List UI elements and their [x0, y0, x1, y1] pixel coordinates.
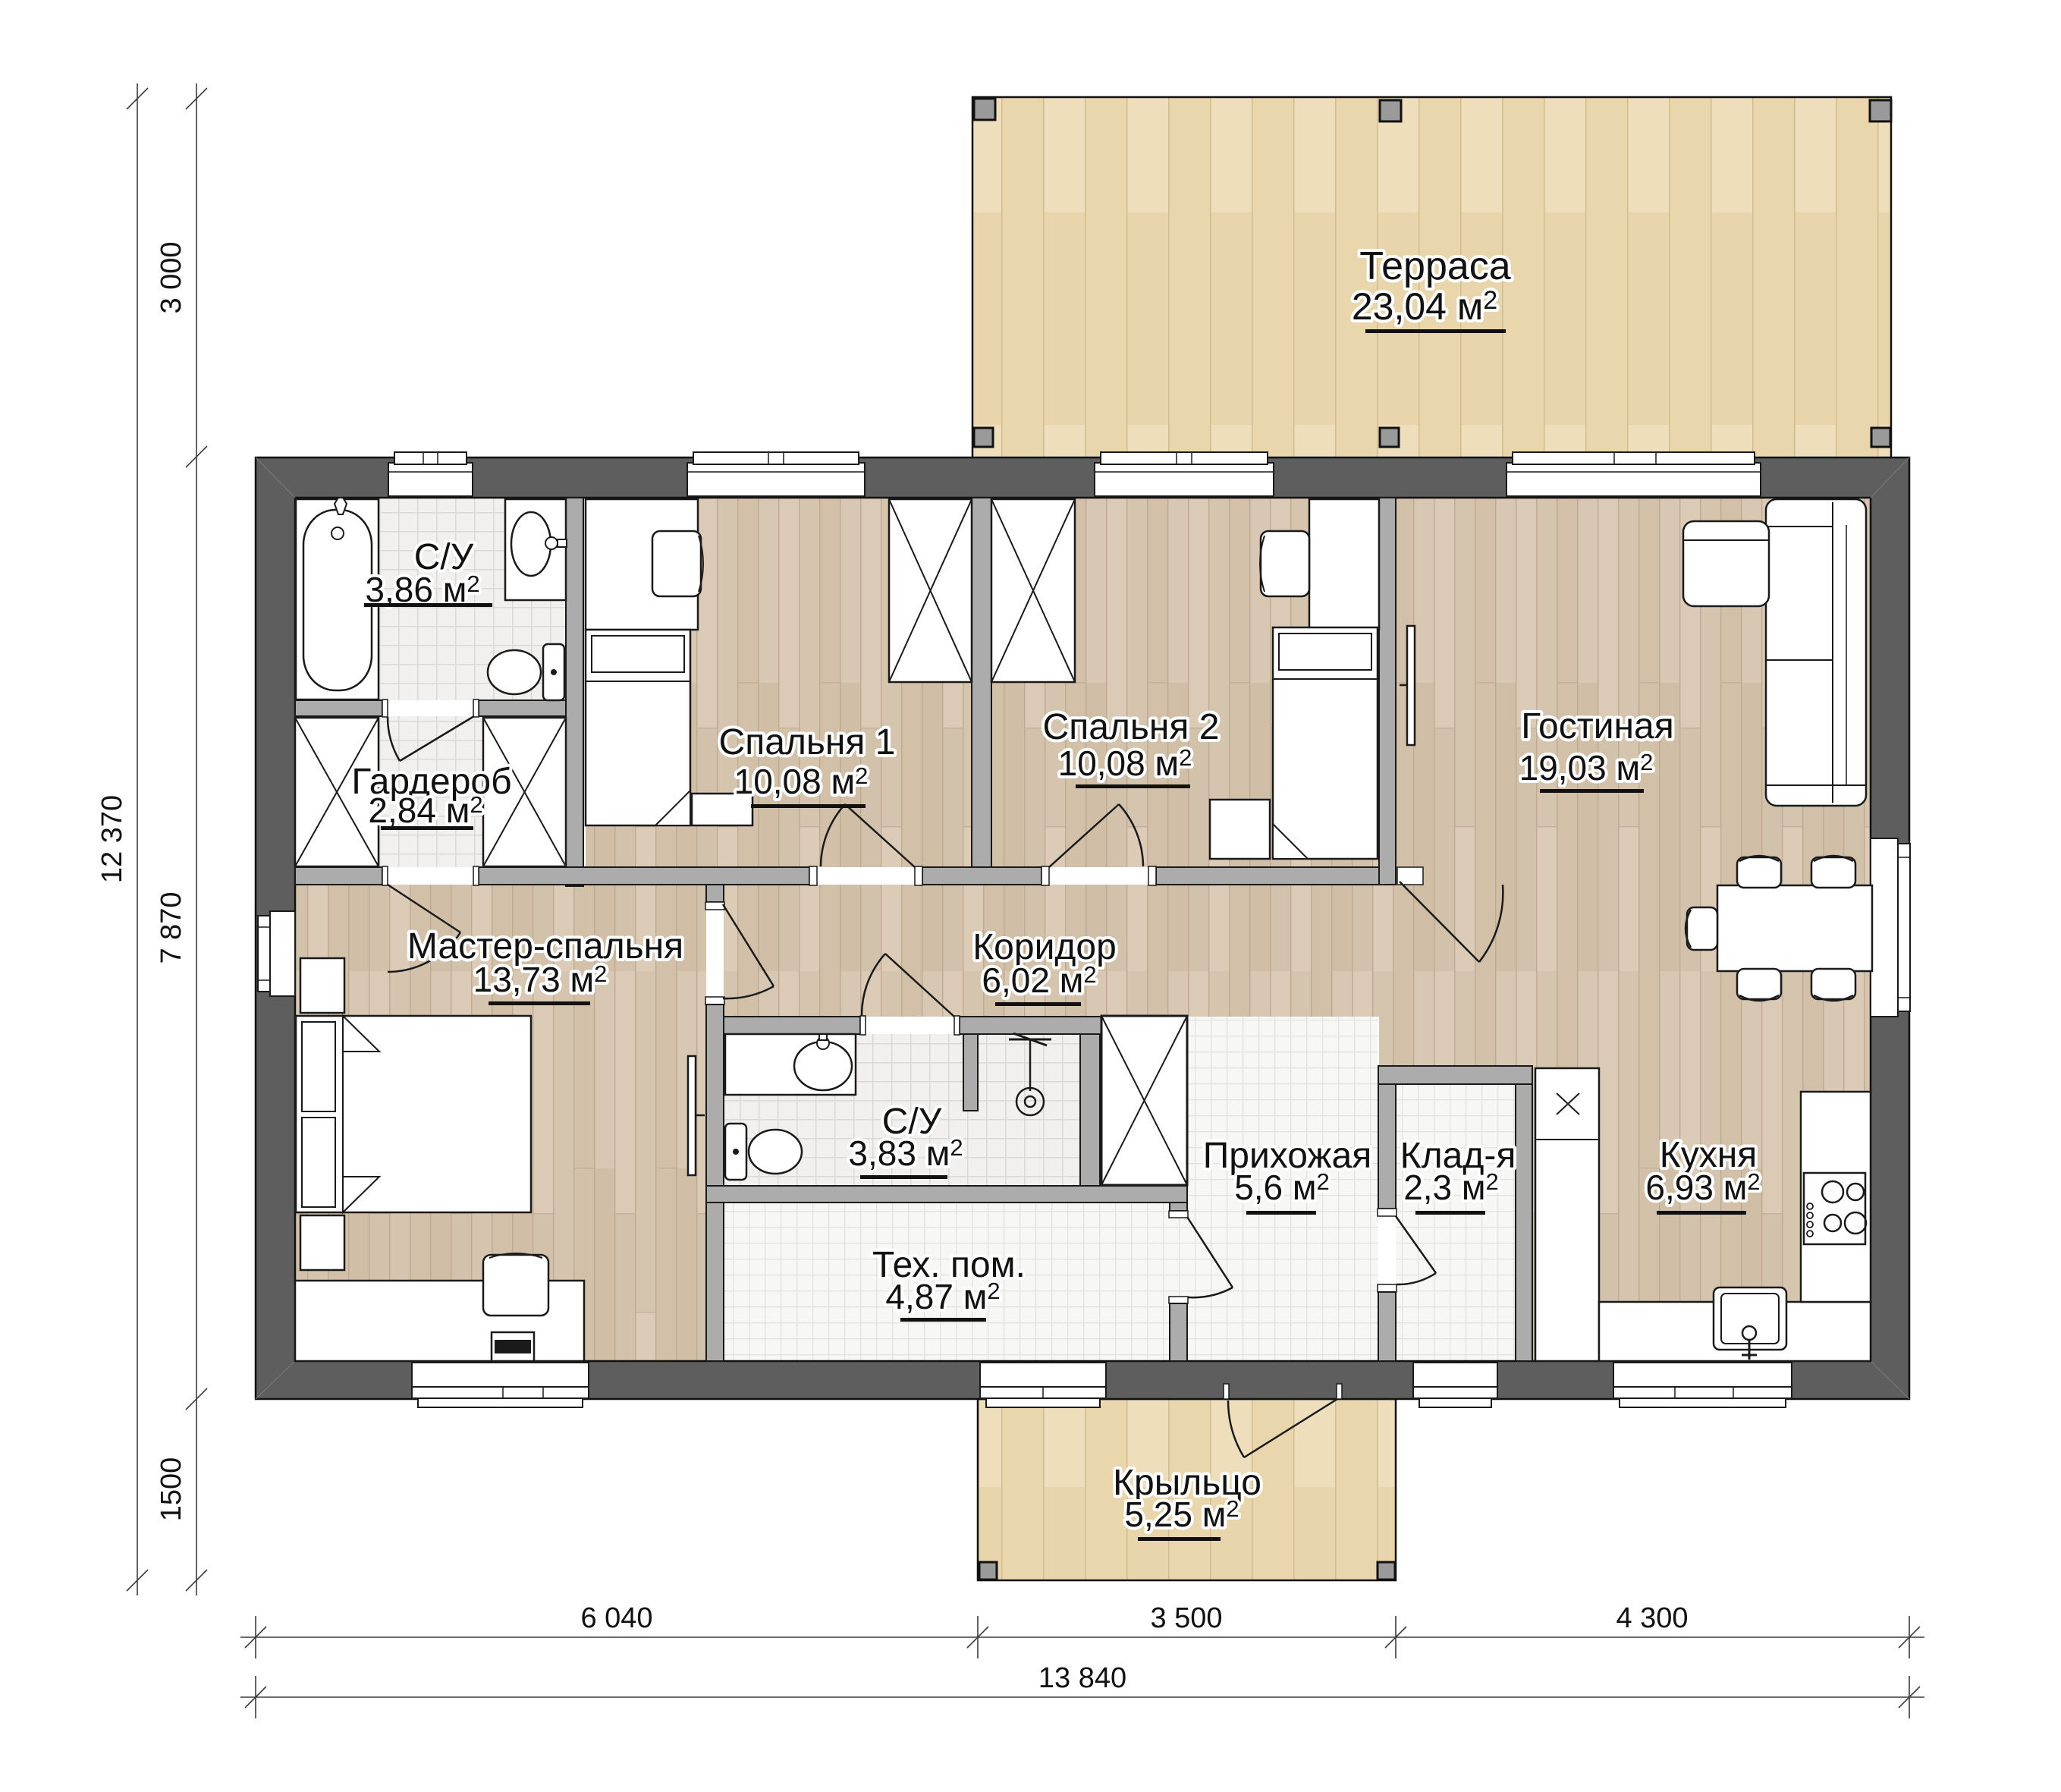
svg-text:1500: 1500 [156, 1457, 187, 1522]
svg-text:7 870: 7 870 [156, 891, 187, 964]
svg-text:10,08 м2: 10,08 м2 [1058, 744, 1192, 783]
svg-text:13 840: 13 840 [1038, 1662, 1126, 1694]
svg-text:2,3 м2: 2,3 м2 [1403, 1168, 1499, 1207]
svg-text:3 500: 3 500 [1150, 1602, 1222, 1634]
svg-text:Терраса: Терраса [1359, 244, 1511, 288]
svg-text:Спальня 1: Спальня 1 [719, 722, 896, 762]
svg-text:23,04 м2: 23,04 м2 [1352, 285, 1497, 328]
svg-text:10,08 м2: 10,08 м2 [734, 762, 869, 801]
svg-text:6 040: 6 040 [580, 1602, 652, 1634]
svg-text:13,73 м2: 13,73 м2 [473, 960, 608, 999]
svg-text:5,6 м2: 5,6 м2 [1234, 1168, 1330, 1207]
svg-text:Спальня 2: Спальня 2 [1043, 707, 1220, 747]
svg-text:4,87 м2: 4,87 м2 [885, 1277, 1000, 1316]
svg-text:3,83 м2: 3,83 м2 [848, 1133, 963, 1173]
svg-text:6,93 м2: 6,93 м2 [1645, 1168, 1760, 1207]
svg-text:19,03 м2: 19,03 м2 [1519, 748, 1654, 788]
svg-text:6,02 м2: 6,02 м2 [982, 960, 1096, 1000]
svg-text:3 000: 3 000 [156, 241, 187, 313]
svg-text:5,25 м2: 5,25 м2 [1124, 1495, 1239, 1534]
svg-text:4 300: 4 300 [1616, 1602, 1688, 1634]
svg-text:12 370: 12 370 [96, 795, 128, 883]
svg-text:Гостиная: Гостиная [1521, 706, 1673, 747]
svg-text:2,84 м2: 2,84 м2 [368, 791, 482, 830]
